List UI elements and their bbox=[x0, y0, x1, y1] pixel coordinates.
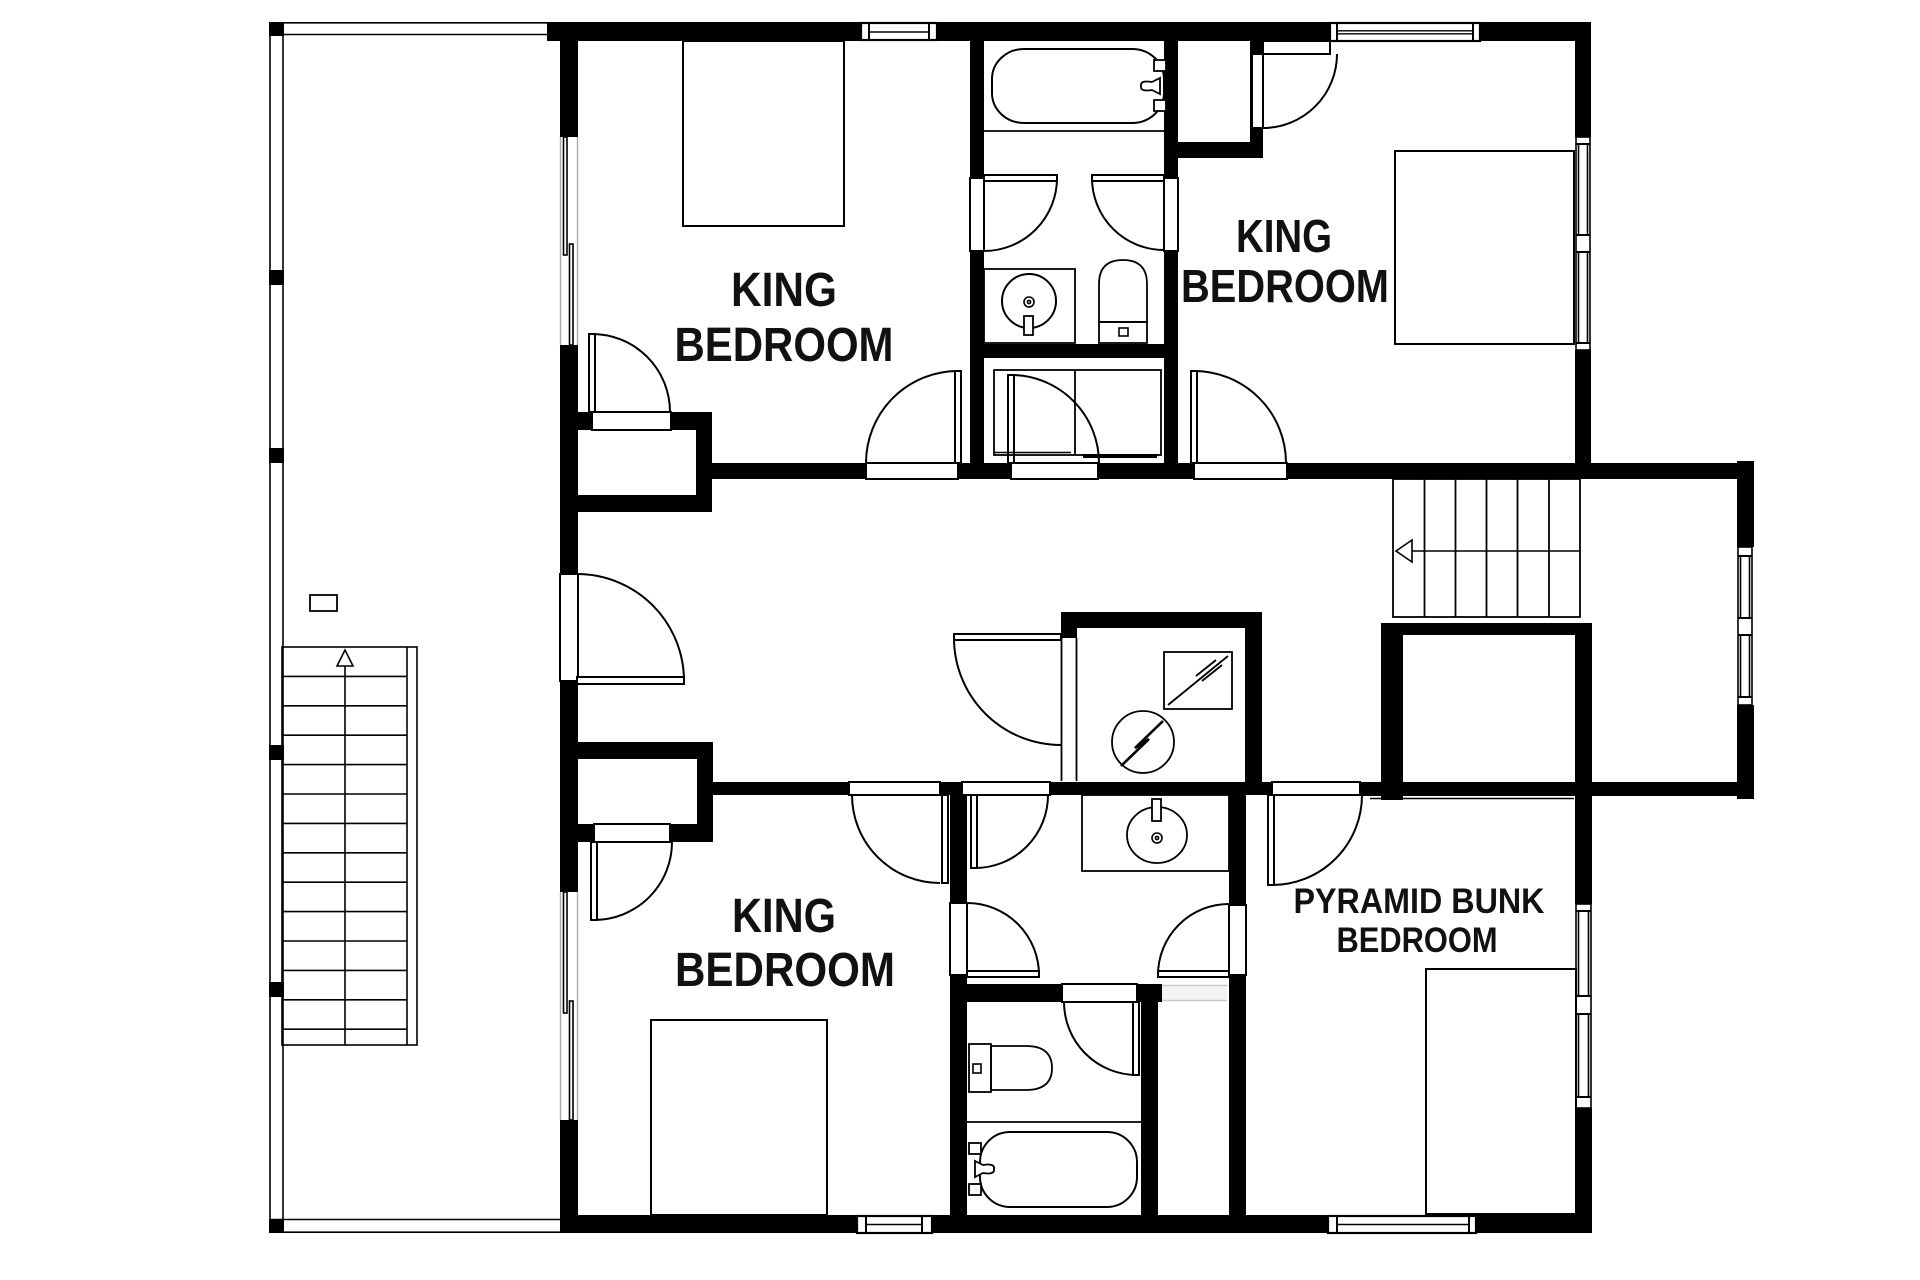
svg-text:KING: KING bbox=[732, 890, 836, 943]
svg-text:KING: KING bbox=[731, 264, 837, 317]
svg-text:BEDROOM: BEDROOM bbox=[675, 944, 895, 997]
svg-text:BEDROOM: BEDROOM bbox=[1337, 921, 1498, 960]
svg-text:KING: KING bbox=[1236, 210, 1332, 262]
svg-text:BEDROOM: BEDROOM bbox=[1181, 260, 1389, 312]
svg-text:BEDROOM: BEDROOM bbox=[675, 319, 894, 372]
svg-text:PYRAMID BUNK: PYRAMID BUNK bbox=[1294, 882, 1545, 921]
